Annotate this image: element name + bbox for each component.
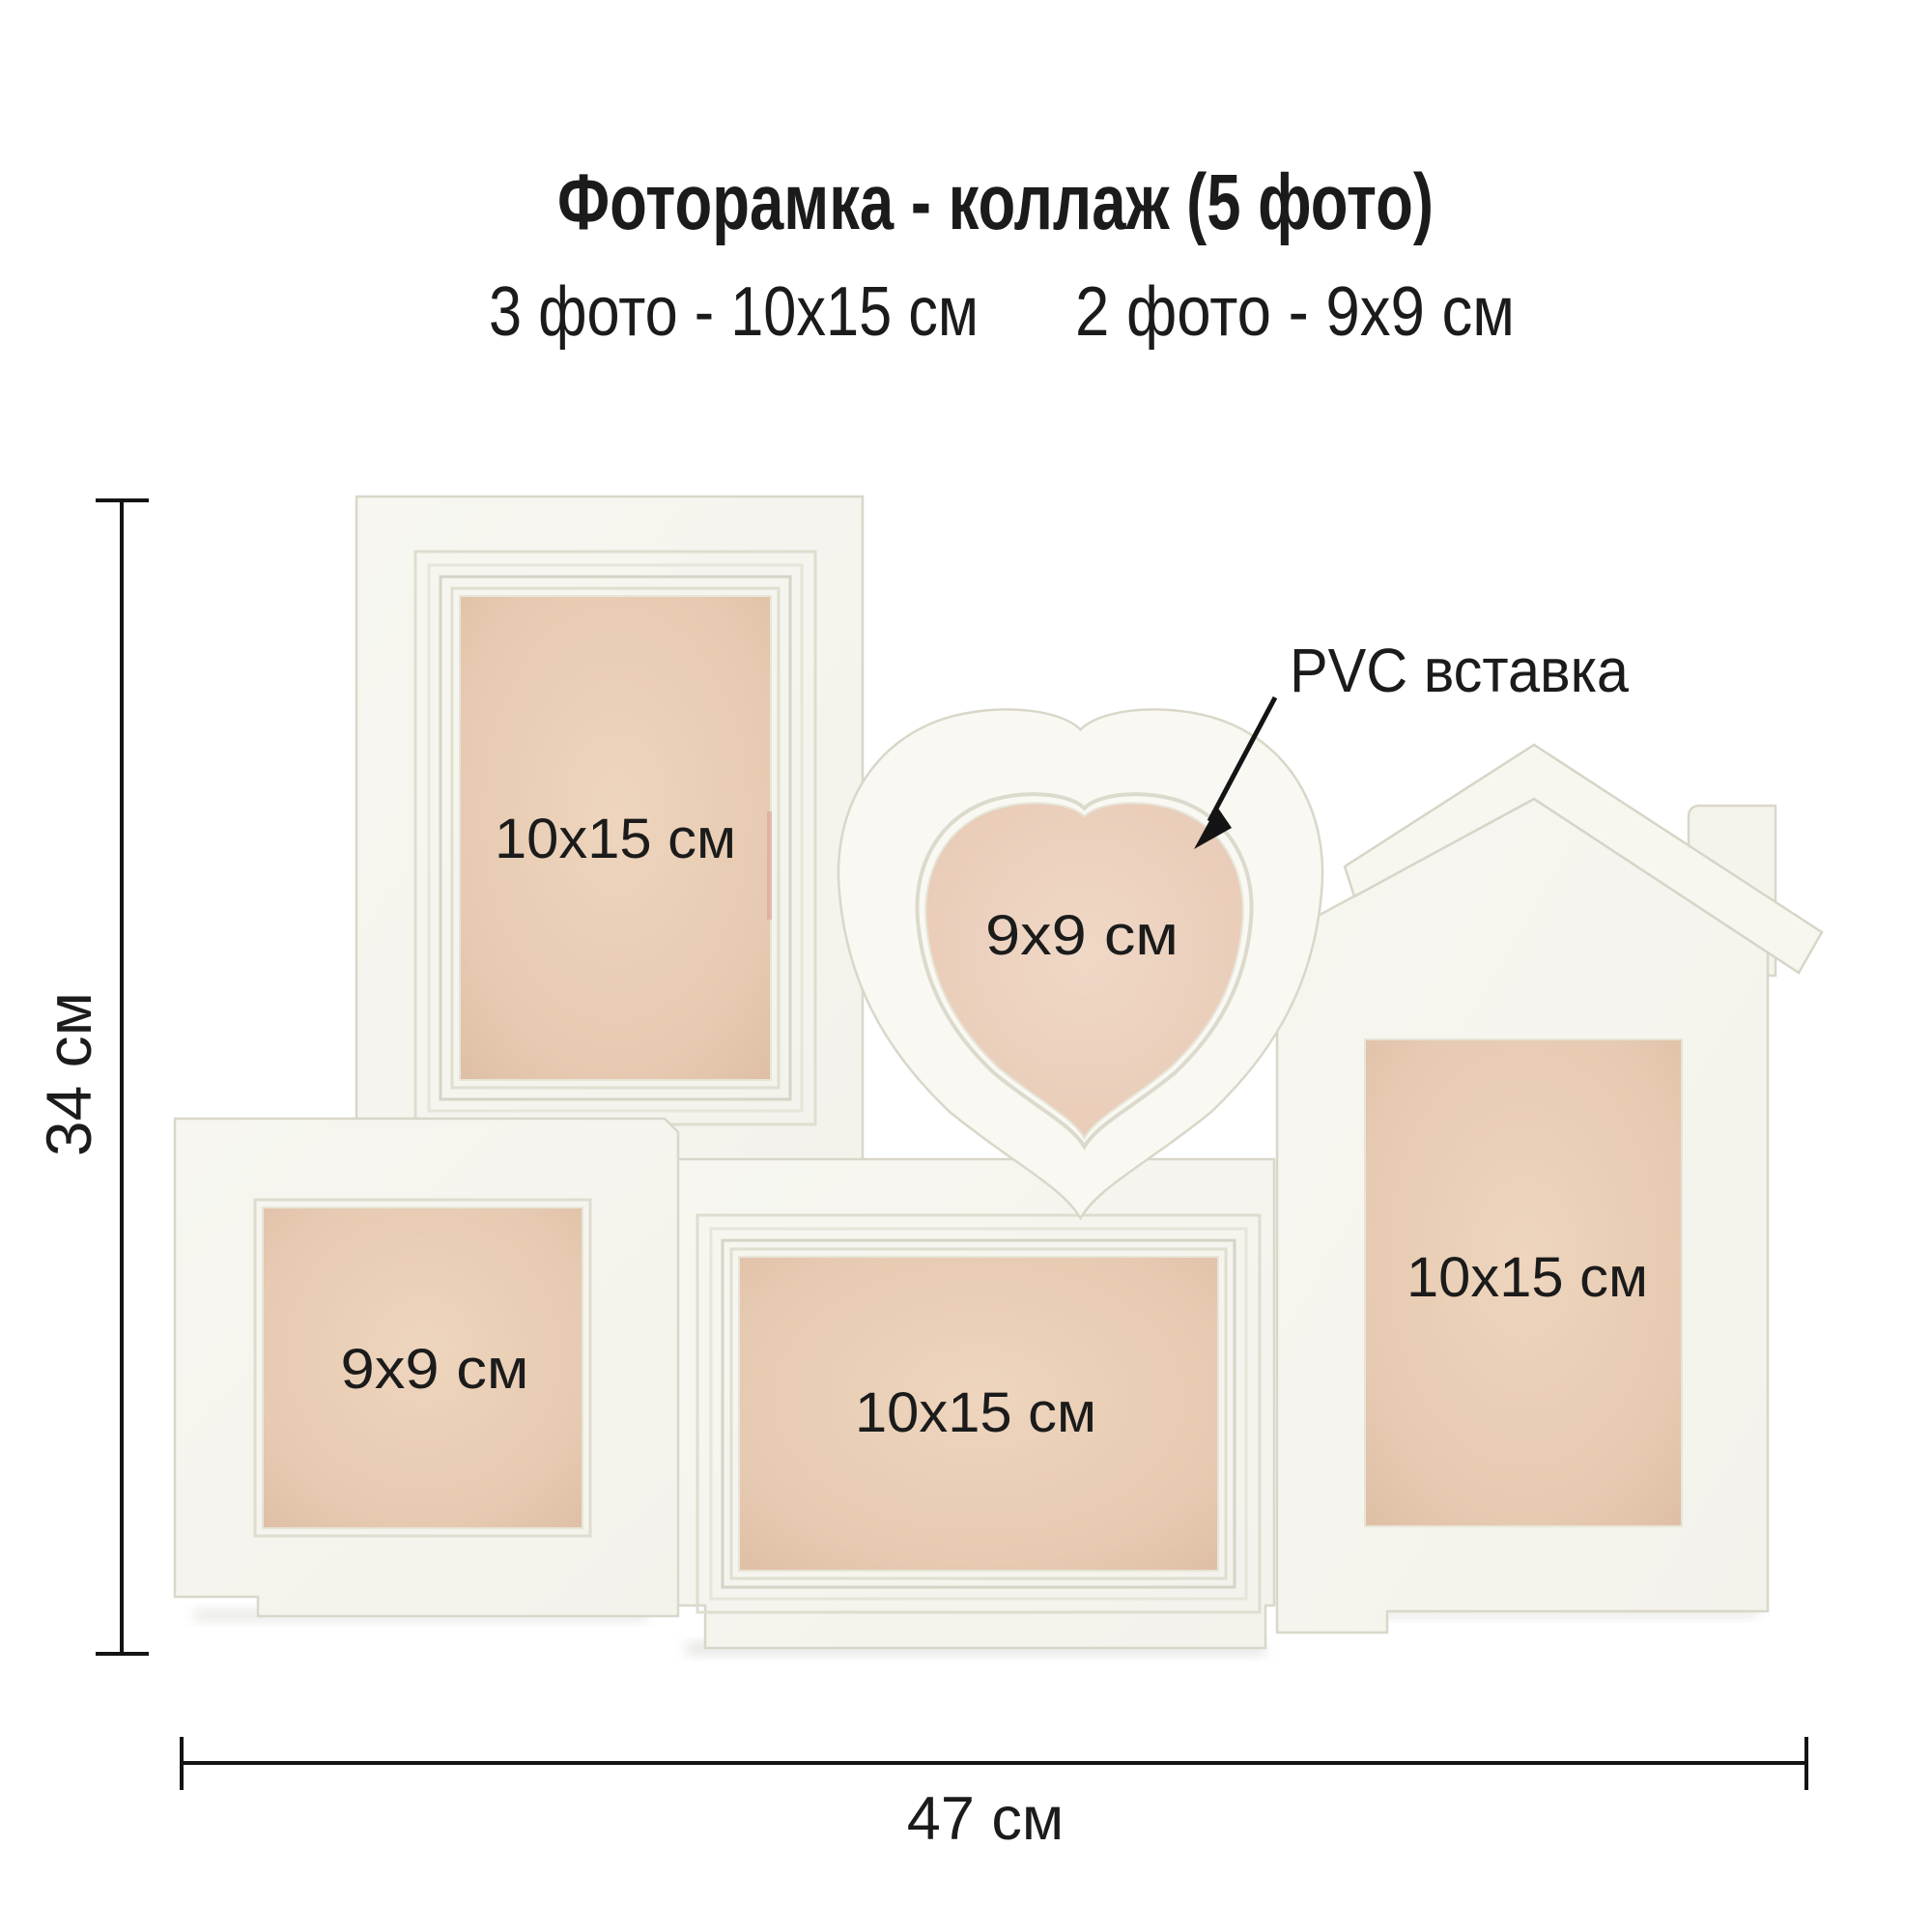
svg-text:47 см: 47 см bbox=[907, 1785, 1064, 1853]
svg-text:9х9 см: 9х9 см bbox=[985, 904, 1179, 967]
svg-text:2 фото - 9х9 см: 2 фото - 9х9 см bbox=[1075, 273, 1515, 351]
svg-text:10х15 см: 10х15 см bbox=[855, 1381, 1096, 1444]
svg-text:9х9 см: 9х9 см bbox=[341, 1338, 529, 1401]
svg-text:34 см: 34 см bbox=[33, 992, 104, 1156]
svg-text:3 фото - 10х15 см: 3 фото - 10х15 см bbox=[489, 273, 979, 351]
svg-text:PVC вставка: PVC вставка bbox=[1290, 636, 1629, 705]
svg-text:Фоторамка - коллаж (5 фото): Фоторамка - коллаж (5 фото) bbox=[557, 158, 1434, 246]
svg-text:10х15 см: 10х15 см bbox=[1406, 1246, 1648, 1309]
svg-text:10х15 см: 10х15 см bbox=[495, 808, 736, 870]
